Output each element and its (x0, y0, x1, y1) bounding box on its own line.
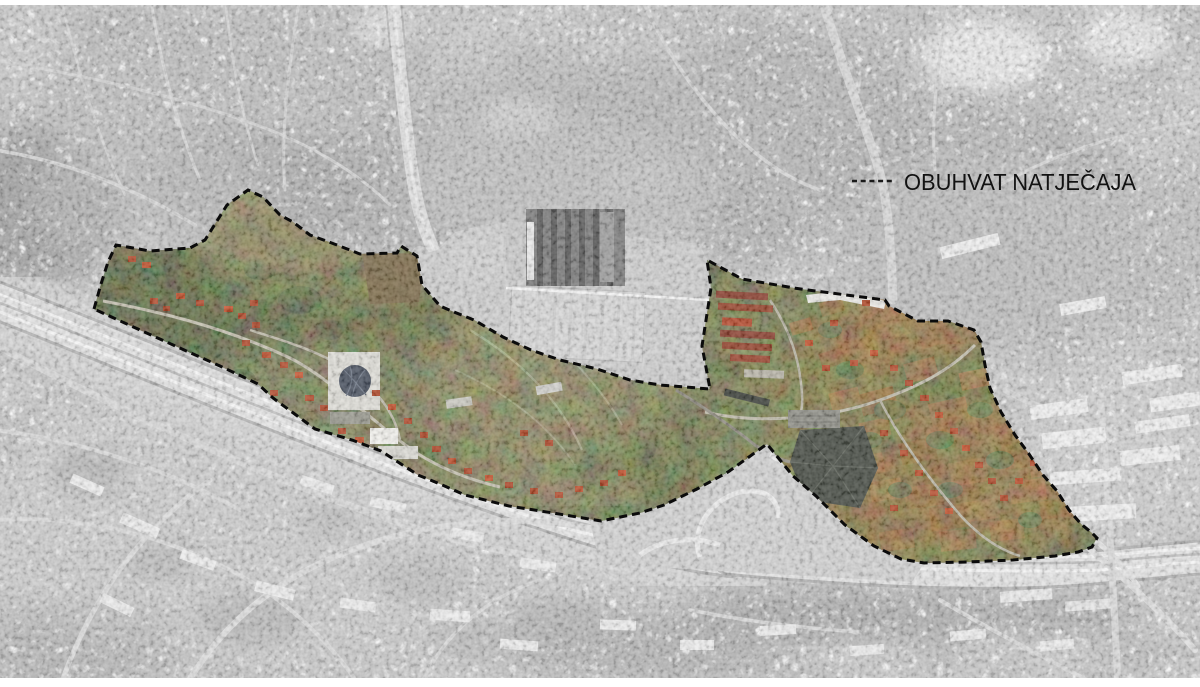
svg-text:OBUHVAT NATJEČAJA: OBUHVAT NATJEČAJA (904, 168, 1137, 195)
